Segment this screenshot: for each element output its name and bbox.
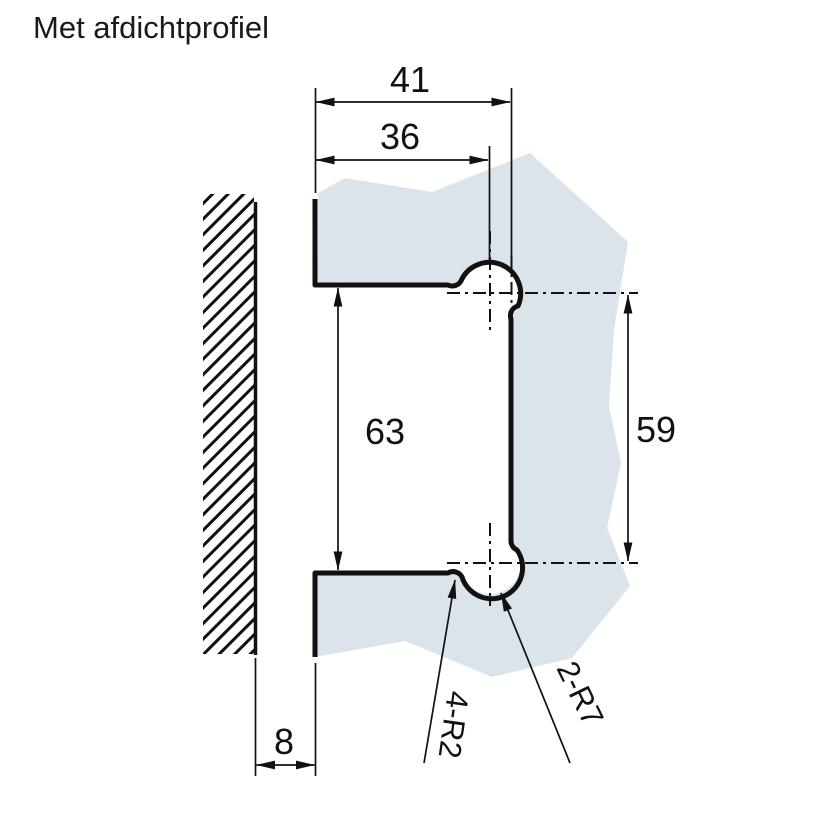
dim-text-41: 41 <box>390 59 430 100</box>
drawing-title: Met afdichtprofiel <box>33 10 269 46</box>
dim-text-36: 36 <box>380 116 420 157</box>
dim-text-59: 59 <box>636 409 676 450</box>
radius-label-2r7: 2-R7 <box>550 656 611 732</box>
dim-text-63: 63 <box>365 411 405 452</box>
dim-text-8: 8 <box>274 721 294 762</box>
technical-drawing: 41 36 63 59 8 4-R2 2-R7 <box>0 0 828 828</box>
radius-label-4r2: 4-R2 <box>432 689 476 760</box>
wall-hatch-trim <box>198 194 203 654</box>
wall-hatching <box>203 194 254 654</box>
